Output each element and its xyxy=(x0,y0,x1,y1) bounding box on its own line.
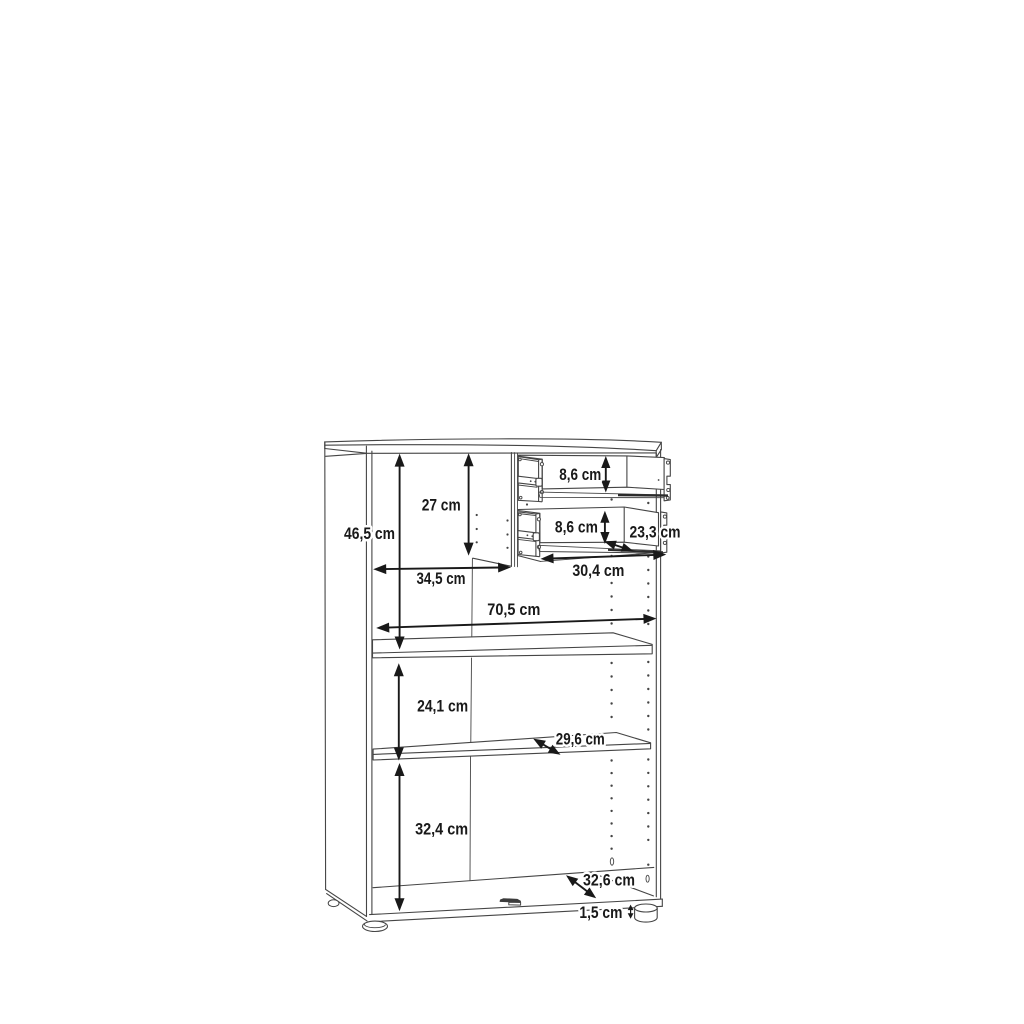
svg-text:24,1 cm: 24,1 cm xyxy=(417,697,468,715)
svg-text:27 cm: 27 cm xyxy=(422,497,461,515)
svg-text:29,6 cm: 29,6 cm xyxy=(556,730,605,748)
svg-text:70,5 cm: 70,5 cm xyxy=(487,601,540,619)
svg-text:34,5 cm: 34,5 cm xyxy=(417,570,466,588)
svg-text:32,6 cm: 32,6 cm xyxy=(583,872,635,890)
svg-text:32,4 cm: 32,4 cm xyxy=(415,821,468,839)
svg-text:8,6 cm: 8,6 cm xyxy=(555,518,598,536)
svg-text:46,5 cm: 46,5 cm xyxy=(344,525,395,543)
svg-text:30,4 cm: 30,4 cm xyxy=(572,562,624,580)
svg-text:8,6 cm: 8,6 cm xyxy=(559,466,601,484)
svg-text:23,3 cm: 23,3 cm xyxy=(630,524,681,542)
svg-text:1,5 cm: 1,5 cm xyxy=(579,904,622,922)
